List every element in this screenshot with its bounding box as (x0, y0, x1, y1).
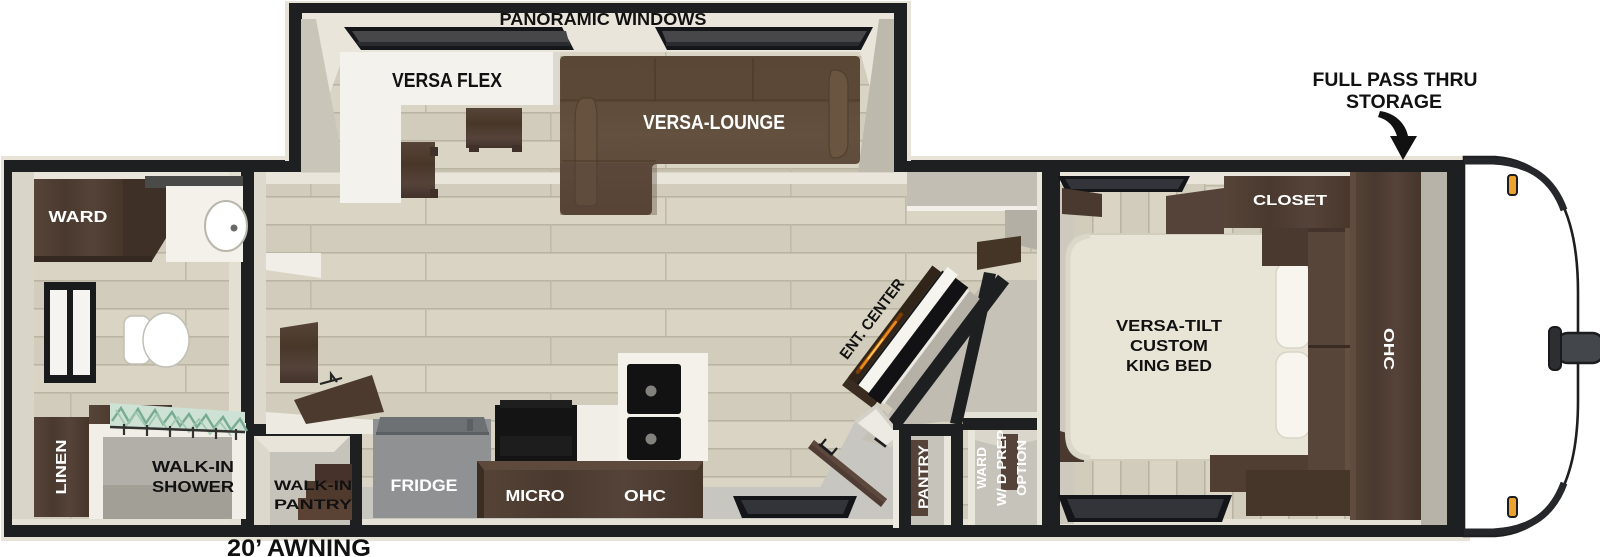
svg-text:PANORAMIC WINDOWS: PANORAMIC WINDOWS (500, 9, 707, 29)
svg-text:WARD: WARD (49, 209, 108, 226)
svg-text:WARD: WARD (974, 447, 989, 489)
svg-text:WALK-IN: WALK-IN (152, 459, 234, 476)
svg-text:PANTRY: PANTRY (916, 445, 931, 509)
svg-text:20’ AWNING: 20’ AWNING (227, 535, 371, 557)
svg-text:FULL PASS THRU: FULL PASS THRU (1313, 69, 1478, 91)
svg-text:VERSA FLEX: VERSA FLEX (392, 70, 503, 92)
svg-text:VERSA-LOUNGE: VERSA-LOUNGE (643, 112, 785, 134)
svg-text:CLOSET: CLOSET (1253, 192, 1327, 209)
svg-text:OHC: OHC (1380, 328, 1397, 370)
svg-text:OHC: OHC (624, 488, 667, 505)
svg-text:W/ D PREP: W/ D PREP (994, 430, 1009, 506)
svg-text:PANTRY: PANTRY (274, 497, 352, 512)
svg-text:WALK-IN: WALK-IN (274, 478, 352, 493)
svg-text:STORAGE: STORAGE (1346, 91, 1442, 113)
svg-text:OPTION: OPTION (1014, 440, 1029, 496)
svg-text:SHOWER: SHOWER (152, 479, 234, 496)
svg-text:LINEN: LINEN (53, 440, 70, 495)
svg-text:MICRO: MICRO (506, 488, 565, 505)
svg-text:CUSTOM: CUSTOM (1130, 338, 1208, 355)
svg-text:VERSA-TILT: VERSA-TILT (1116, 318, 1223, 335)
svg-text:KING BED: KING BED (1126, 358, 1212, 375)
svg-text:FRIDGE: FRIDGE (391, 476, 458, 495)
